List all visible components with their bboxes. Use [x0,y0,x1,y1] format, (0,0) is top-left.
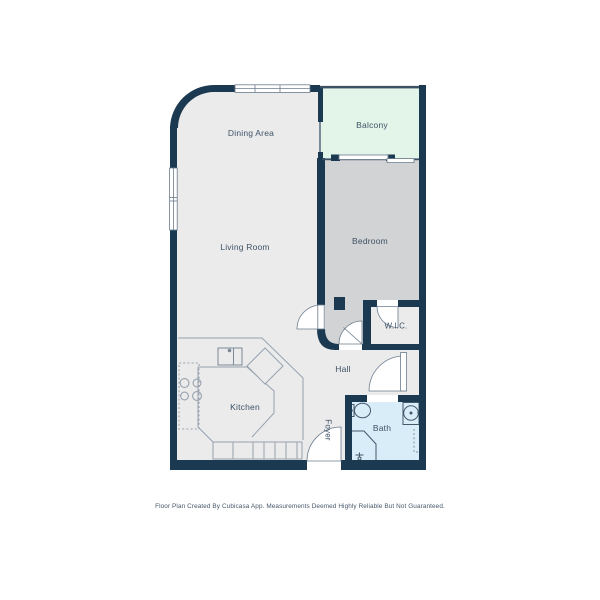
bottom-wall-right [341,460,426,470]
bedroom-west-wall [317,158,325,305]
cabinet-run [213,442,302,459]
floor-areas [170,85,426,470]
left-wall-lower [170,230,177,462]
window [235,85,310,93]
bedroom-floor [325,160,419,300]
room-label-balcony: Balcony [356,120,388,130]
footer-disclaimer: Floor Plan Created By Cubicasa App. Meas… [0,503,600,510]
room-label-wic: W.I.C. [385,322,408,331]
bottom-wall-left [170,460,307,470]
wic-south-wall [362,344,426,350]
room-label-bedroom: Bedroom [352,236,388,246]
window [170,168,178,230]
room-label-hall: Hall [335,364,350,374]
bath-west-wall [345,395,352,461]
bedroom-door-jamb [334,297,345,310]
left-wall-upper [170,126,177,168]
floor-plan-canvas: Dining Area Balcony Living Room Bedroom … [0,0,600,600]
kitchen-sink-icon [218,348,242,365]
floor-plan-drawing [0,0,600,600]
room-label-kitchen: Kitchen [230,402,260,412]
room-label-foyer: Foyer [324,419,333,440]
right-wall [419,85,426,470]
room-label-dining-area: Dining Area [228,128,274,138]
room-label-living-room: Living Room [220,242,269,252]
room-label-bath: Bath [373,423,391,433]
